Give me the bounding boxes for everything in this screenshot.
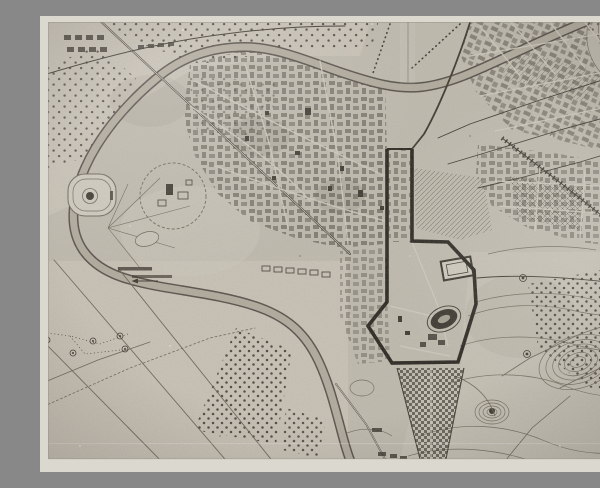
map-photograph bbox=[40, 16, 600, 472]
map-print bbox=[40, 16, 600, 472]
vignette bbox=[48, 22, 600, 459]
